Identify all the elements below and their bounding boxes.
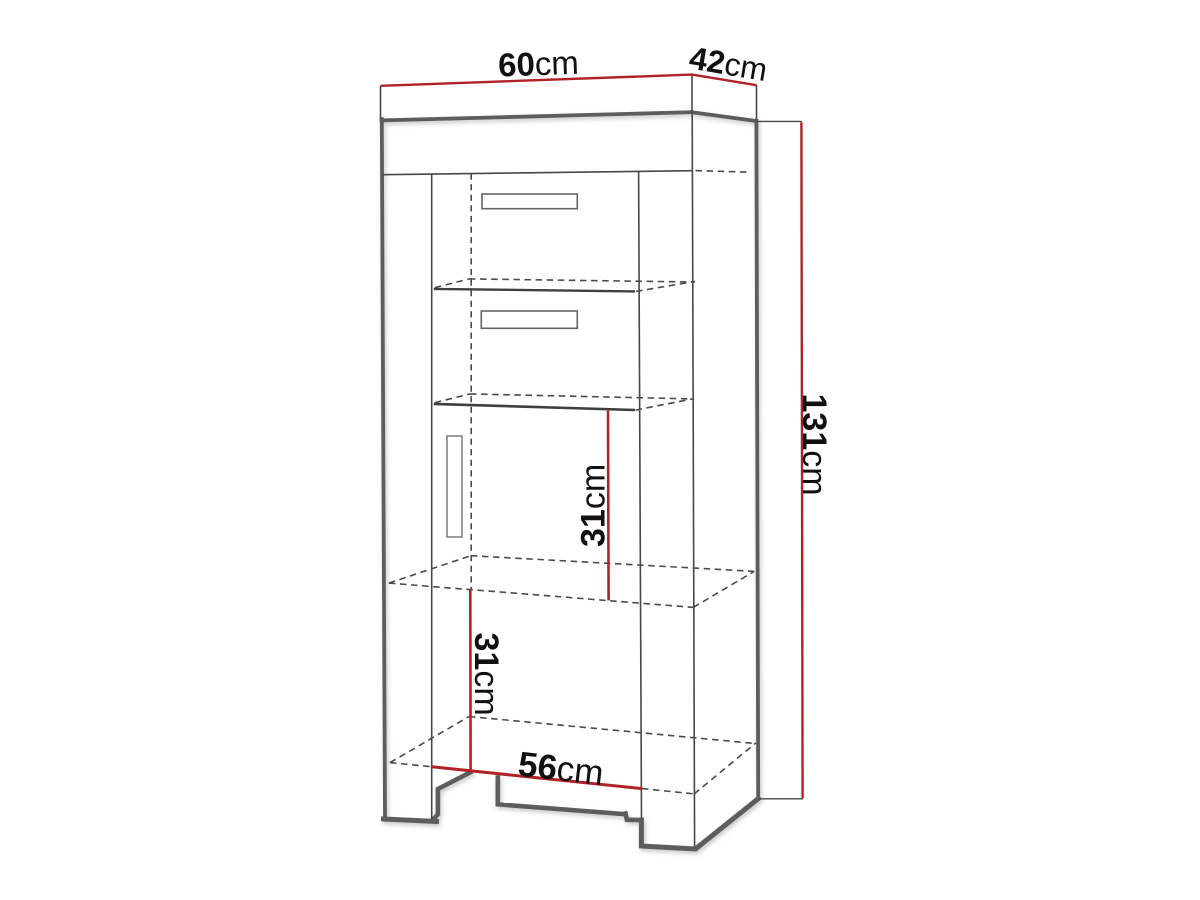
svg-text:42cm: 42cm bbox=[687, 40, 770, 88]
svg-text:131cm: 131cm bbox=[795, 394, 833, 496]
svg-text:56cm: 56cm bbox=[516, 745, 605, 793]
svg-text:31cm: 31cm bbox=[574, 464, 612, 547]
svg-text:31cm: 31cm bbox=[467, 633, 505, 716]
svg-text:60cm: 60cm bbox=[497, 44, 579, 84]
